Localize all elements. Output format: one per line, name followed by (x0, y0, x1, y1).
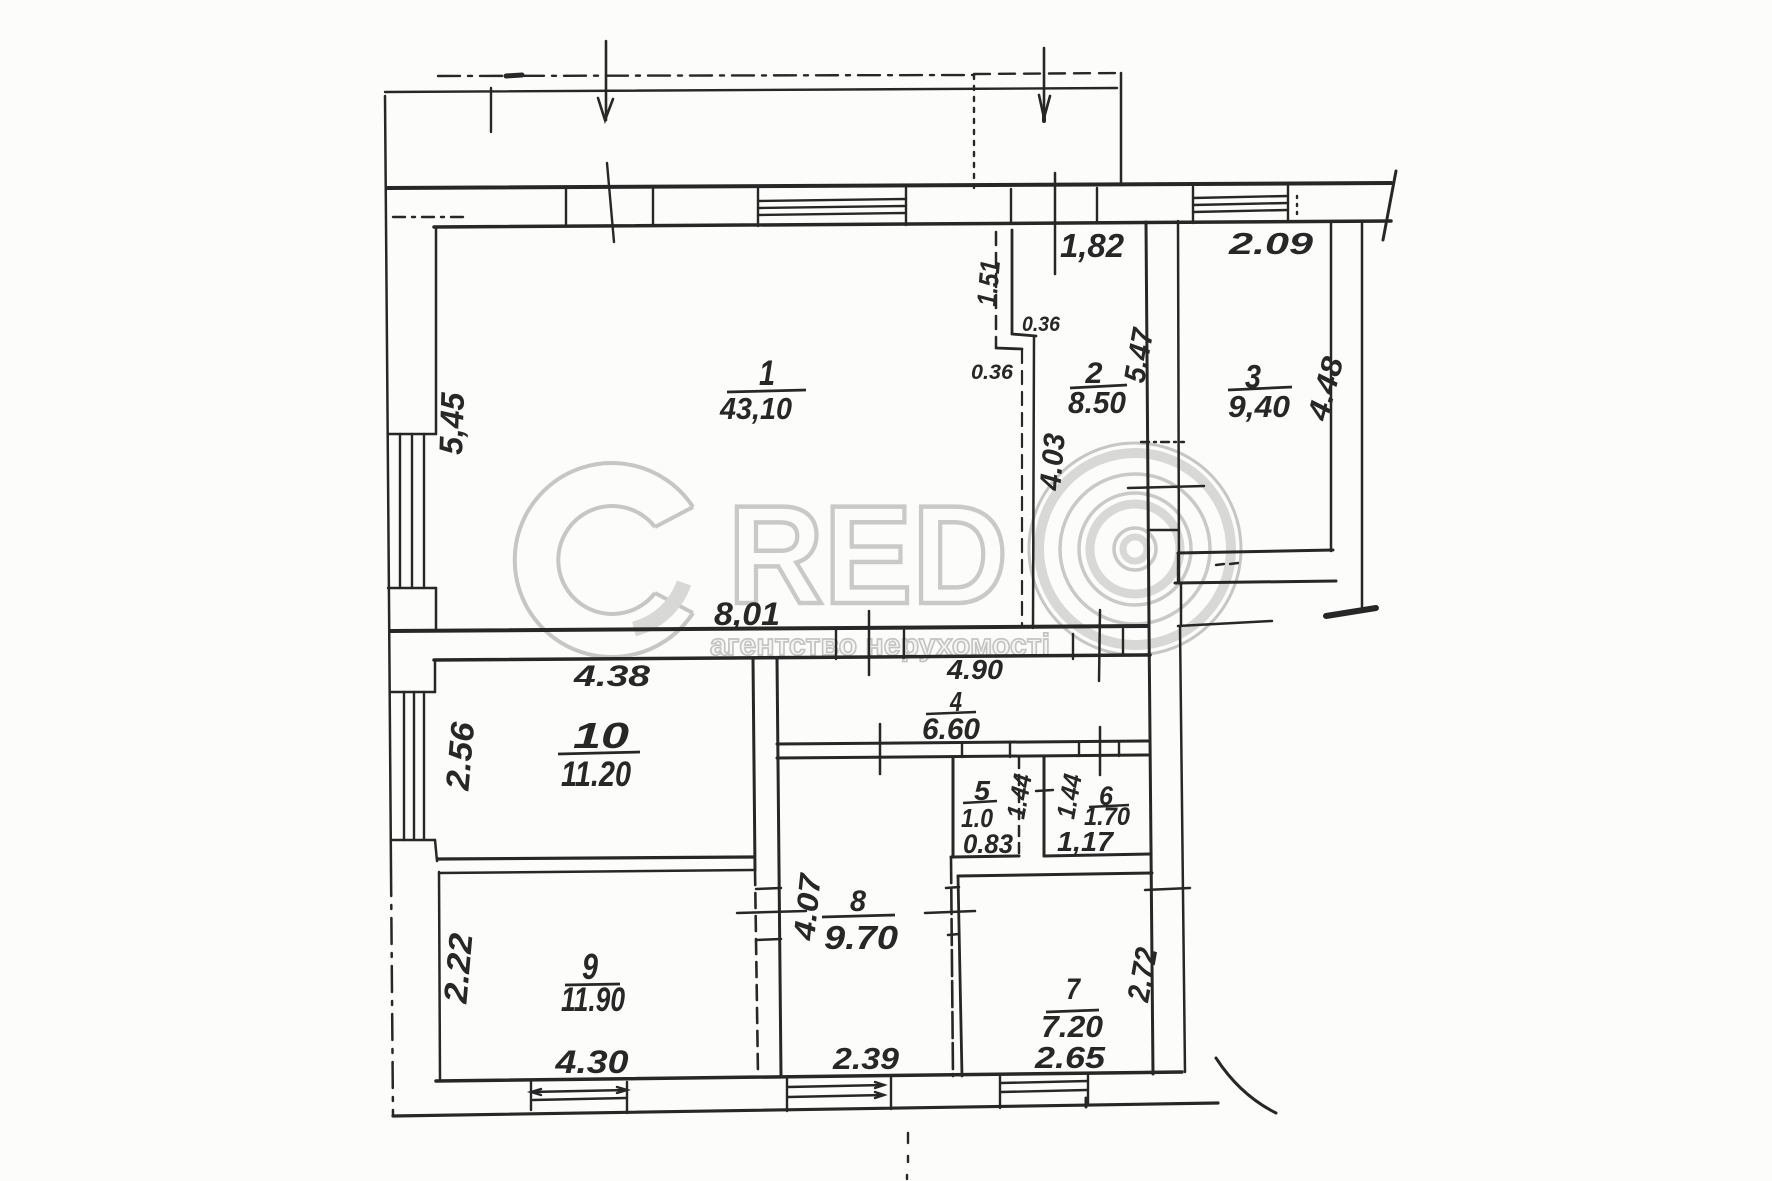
svg-text:11.90: 11.90 (561, 981, 625, 1019)
svg-text:9,40: 9,40 (1228, 389, 1290, 424)
svg-text:7: 7 (1066, 973, 1081, 1006)
svg-text:4.38: 4.38 (573, 660, 651, 693)
svg-text:2.39: 2.39 (832, 1041, 900, 1076)
svg-text:8.50: 8.50 (1068, 385, 1126, 420)
svg-text:8: 8 (850, 885, 866, 918)
svg-text:1: 1 (759, 354, 775, 393)
svg-text:11.20: 11.20 (561, 755, 631, 794)
svg-text:4.30: 4.30 (554, 1044, 628, 1080)
svg-text:2.09: 2.09 (1228, 226, 1314, 261)
svg-text:2.65: 2.65 (1034, 1040, 1106, 1075)
svg-text:9.70: 9.70 (824, 919, 899, 956)
svg-text:1,17: 1,17 (1057, 826, 1114, 857)
svg-text:5,45: 5,45 (432, 391, 471, 455)
svg-text:2.56: 2.56 (438, 720, 481, 793)
svg-text:0.36: 0.36 (1022, 313, 1060, 336)
svg-text:1.51: 1.51 (971, 259, 1006, 308)
svg-text:2.22: 2.22 (436, 931, 479, 1006)
svg-text:1,82: 1,82 (1060, 227, 1125, 264)
svg-text:0.36: 0.36 (971, 361, 1013, 384)
svg-text:0.83: 0.83 (963, 829, 1013, 859)
svg-text:6.60: 6.60 (922, 713, 980, 746)
svg-text:7.20: 7.20 (1041, 1009, 1103, 1044)
svg-text:10: 10 (573, 715, 629, 756)
svg-text:43,10: 43,10 (719, 391, 792, 426)
svg-text:8,01: 8,01 (714, 596, 780, 632)
svg-text:4.03: 4.03 (1034, 432, 1072, 493)
svg-text:4.90: 4.90 (946, 654, 1003, 685)
